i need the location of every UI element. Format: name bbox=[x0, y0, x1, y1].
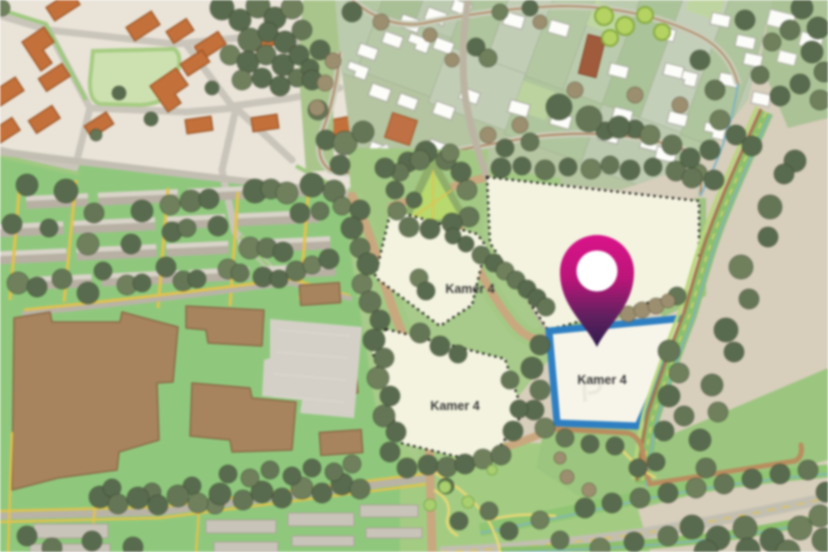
svg-text:Kamer 4: Kamer 4 bbox=[445, 282, 494, 296]
svg-text:Kamer 4: Kamer 4 bbox=[430, 399, 479, 413]
svg-text:Kamer 4: Kamer 4 bbox=[577, 373, 626, 387]
